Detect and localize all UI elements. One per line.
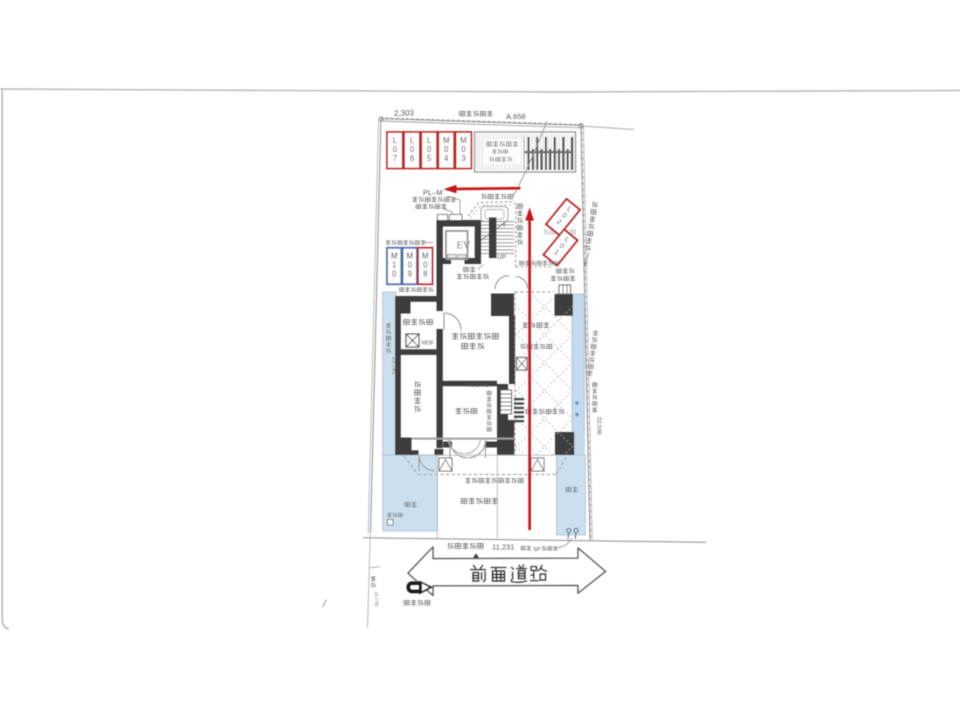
svg-text:22,536: 22,536 — [596, 417, 602, 435]
svg-text:11,231: 11,231 — [492, 543, 514, 552]
svg-text:L05: L05 — [427, 136, 432, 163]
svg-text:PL–M: PL–M — [423, 188, 443, 197]
svg-text:EV: EV — [457, 241, 471, 252]
svg-text:UP: UP — [497, 254, 506, 261]
svg-text:2,303: 2,303 — [394, 108, 415, 118]
svg-text:(4,770): (4,770) — [374, 592, 379, 607]
svg-text:MDF: MDF — [422, 341, 435, 347]
svg-text:L07: L07 — [393, 136, 398, 163]
svg-text:L06: L06 — [410, 136, 415, 163]
svg-text:SP: SP — [533, 547, 541, 553]
svg-text:A.658: A.658 — [506, 112, 526, 121]
svg-text:22,761: 22,761 — [391, 357, 397, 375]
